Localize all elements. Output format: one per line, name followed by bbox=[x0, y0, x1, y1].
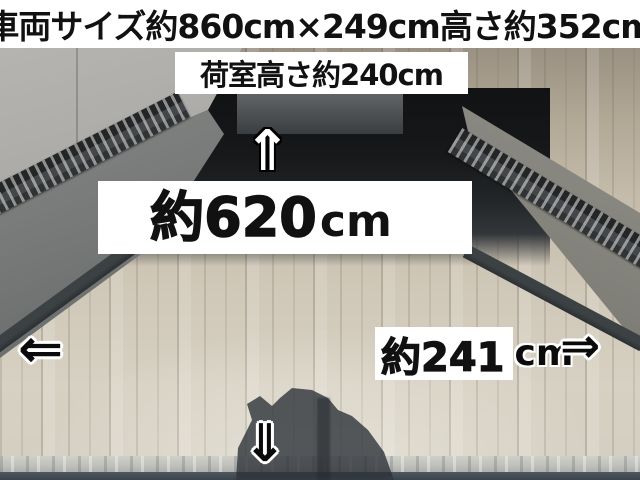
up-arrow-icon: ⇑ bbox=[244, 124, 291, 180]
cargo-width-label: 約241 cm bbox=[375, 327, 573, 380]
truck-listing-photo: 車両サイズ約860cm×249cm高さ約352cm 荷室高さ約240cm ⇑ 約… bbox=[0, 0, 640, 480]
cargo-length-label: 約620cm bbox=[98, 181, 472, 254]
cargo-length-value: 約620 bbox=[150, 181, 317, 254]
cargo-width-value: 約241 bbox=[375, 327, 513, 380]
cargo-height-banner: 荷室高さ約240cm bbox=[175, 52, 468, 94]
vehicle-size-text: 車両サイズ約860cm×249cm高さ約352cm bbox=[0, 0, 640, 48]
floor-center-seam bbox=[317, 398, 330, 480]
down-arrow-icon: ⇓ bbox=[243, 418, 287, 470]
left-arrow-icon: ⇐ bbox=[18, 322, 63, 376]
cargo-height-text: 荷室高さ約240cm bbox=[200, 52, 443, 94]
cargo-length-unit: cm bbox=[320, 196, 392, 247]
right-arrow-icon: ⇒ bbox=[560, 322, 600, 370]
cargo-interior-photo bbox=[0, 48, 640, 480]
vehicle-size-banner: 車両サイズ約860cm×249cm高さ約352cm bbox=[0, 0, 640, 48]
